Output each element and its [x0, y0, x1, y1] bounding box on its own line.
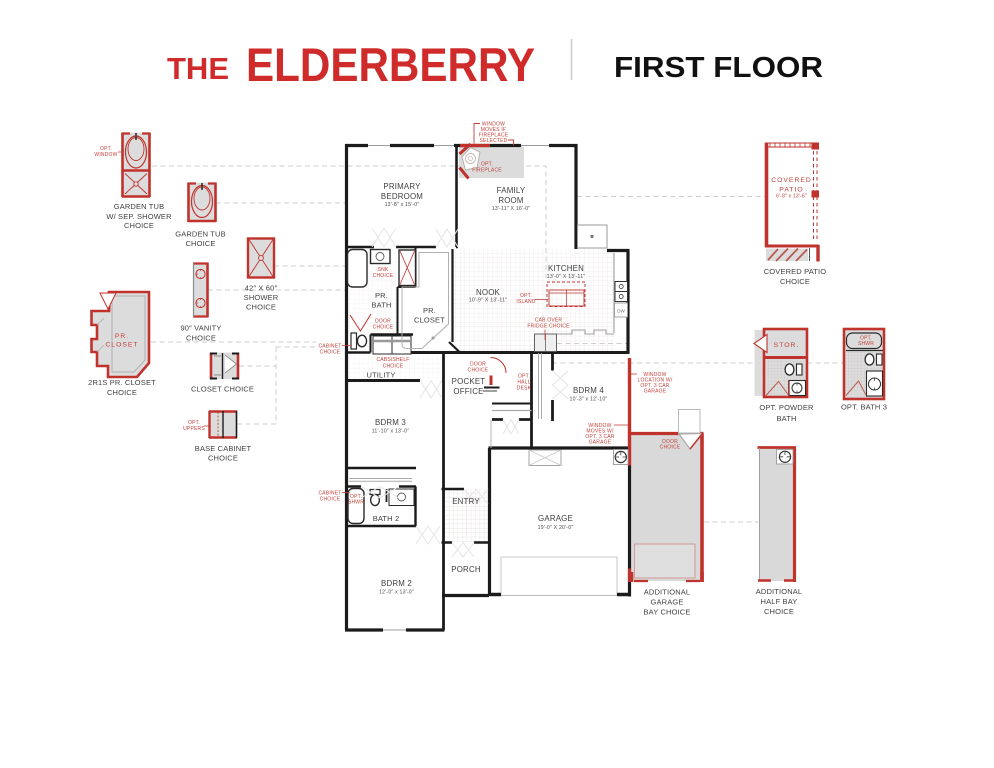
svg-text:BATH: BATH [776, 414, 796, 423]
svg-text:ISLAND: ISLAND [516, 299, 535, 305]
svg-text:PATIO: PATIO [779, 187, 803, 194]
svg-text:CLOSET: CLOSET [105, 342, 138, 349]
svg-text:BDRM 4: BDRM 4 [573, 386, 604, 395]
svg-text:CHOICE: CHOICE [320, 350, 341, 356]
svg-text:BASE CABINET: BASE CABINET [195, 444, 252, 453]
svg-text:OPT. POWDER: OPT. POWDER [759, 403, 814, 412]
svg-text:BEDROOM: BEDROOM [381, 192, 423, 201]
svg-text:DESK: DESK [517, 386, 532, 392]
svg-text:CHOICE: CHOICE [468, 368, 489, 374]
svg-text:SHOWER: SHOWER [244, 293, 279, 302]
svg-text:PR.: PR. [115, 333, 129, 340]
svg-text:GARAGE: GARAGE [651, 598, 684, 607]
svg-text:CHOICE: CHOICE [373, 325, 394, 331]
svg-text:CHOICE: CHOICE [660, 445, 681, 451]
svg-text:GARAGE: GARAGE [589, 440, 612, 446]
svg-text:BATH: BATH [371, 301, 391, 310]
svg-text:FAMILY: FAMILY [497, 186, 526, 195]
svg-text:13′-11″ X 16′-0″: 13′-11″ X 16′-0″ [492, 206, 530, 212]
svg-text:90″ VANITY: 90″ VANITY [180, 324, 221, 333]
svg-text:NOOK: NOOK [476, 288, 501, 297]
svg-text:GARAGE: GARAGE [644, 389, 667, 395]
svg-text:COVERED PATIO: COVERED PATIO [764, 267, 827, 276]
svg-text:CHOICE: CHOICE [780, 277, 810, 286]
svg-text:POCKET: POCKET [452, 377, 486, 386]
svg-text:CLOSET: CLOSET [414, 316, 445, 325]
svg-text:SELECTED: SELECTED [480, 138, 508, 144]
svg-text:13′-0″ X 13′-11″: 13′-0″ X 13′-11″ [547, 274, 585, 280]
svg-text:PRIMARY: PRIMARY [383, 182, 421, 191]
svg-text:WINDOW: WINDOW [94, 152, 117, 158]
svg-text:CHOICE: CHOICE [320, 497, 341, 503]
svg-text:PORCH: PORCH [451, 565, 481, 574]
svg-text:CHOICE: CHOICE [373, 273, 394, 279]
svg-text:42″ X 60″: 42″ X 60″ [245, 284, 278, 293]
svg-text:CHOICE: CHOICE [186, 334, 216, 343]
svg-text:W/ SEP. SHOWER: W/ SEP. SHOWER [106, 212, 172, 221]
svg-text:SHWR: SHWR [858, 341, 874, 347]
svg-text:GARAGE: GARAGE [538, 514, 573, 523]
svg-text:PR.: PR. [423, 306, 436, 315]
svg-text:CHOICE: CHOICE [383, 364, 404, 370]
svg-text:CLOSET CHOICE: CLOSET CHOICE [191, 385, 254, 394]
svg-text:UPPERS: UPPERS [183, 426, 205, 432]
svg-text:ENTRY: ENTRY [452, 497, 480, 506]
svg-text:GARDEN TUB: GARDEN TUB [175, 230, 226, 239]
svg-text:FIRST FLOOR: FIRST FLOOR [614, 52, 823, 84]
svg-text:10′-9″ X 13′-11″: 10′-9″ X 13′-11″ [469, 298, 507, 304]
svg-text:UTILITY: UTILITY [367, 371, 396, 380]
svg-text:DW: DW [617, 309, 625, 314]
svg-text:10′-3″ x 12′-10″: 10′-3″ x 12′-10″ [570, 397, 608, 403]
svg-text:ADDITIONAL: ADDITIONAL [756, 587, 803, 596]
svg-text:19′-0″ X 20′-0″: 19′-0″ X 20′-0″ [538, 525, 574, 531]
svg-text:CHOICE: CHOICE [185, 239, 215, 248]
svg-text:COVERED: COVERED [771, 177, 812, 184]
svg-text:13′-8″ x 15′-0″: 13′-8″ x 15′-0″ [385, 202, 420, 208]
svg-text:11′-10″ x 13′-0″: 11′-10″ x 13′-0″ [372, 429, 410, 435]
svg-text:BAY CHOICE: BAY CHOICE [643, 608, 690, 617]
svg-text:CHOICE: CHOICE [107, 388, 137, 397]
svg-text:CABS/SHELF: CABS/SHELF [376, 357, 409, 363]
svg-text:ROOM: ROOM [498, 196, 523, 205]
svg-text:BDRM 2: BDRM 2 [381, 579, 412, 588]
svg-text:STOR.: STOR. [774, 342, 800, 349]
svg-text:CHOICE: CHOICE [124, 221, 154, 230]
svg-text:THE: THE [167, 51, 229, 86]
svg-text:CHOICE: CHOICE [208, 454, 238, 463]
svg-text:CHOICE: CHOICE [764, 607, 794, 616]
svg-text:PR.: PR. [375, 291, 388, 300]
svg-text:HALF BAY: HALF BAY [761, 597, 798, 606]
svg-text:BATH 2: BATH 2 [373, 514, 400, 523]
svg-text:FRIDGE CHOICE: FRIDGE CHOICE [527, 324, 570, 330]
svg-text:BDRM 3: BDRM 3 [375, 418, 406, 427]
svg-text:SHWR: SHWR [348, 500, 364, 506]
svg-text:6′-8″ x 13′-6″: 6′-8″ x 13′-6″ [776, 194, 807, 200]
svg-text:OPT. BATH 3: OPT. BATH 3 [841, 403, 887, 412]
svg-text:CHOICE: CHOICE [246, 303, 276, 312]
svg-text:2R1S PR. CLOSET: 2R1S PR. CLOSET [88, 378, 156, 387]
svg-text:FIREPLACE: FIREPLACE [472, 168, 502, 174]
svg-text:GARDEN TUB: GARDEN TUB [114, 202, 165, 211]
svg-text:12′-0″ x 13′-0″: 12′-0″ x 13′-0″ [379, 590, 414, 596]
svg-text:KITCHEN: KITCHEN [548, 264, 584, 273]
svg-text:OFFICE: OFFICE [453, 387, 483, 396]
svg-text:ELDERBERRY: ELDERBERRY [246, 38, 535, 91]
svg-text:ADDITIONAL: ADDITIONAL [644, 588, 691, 597]
